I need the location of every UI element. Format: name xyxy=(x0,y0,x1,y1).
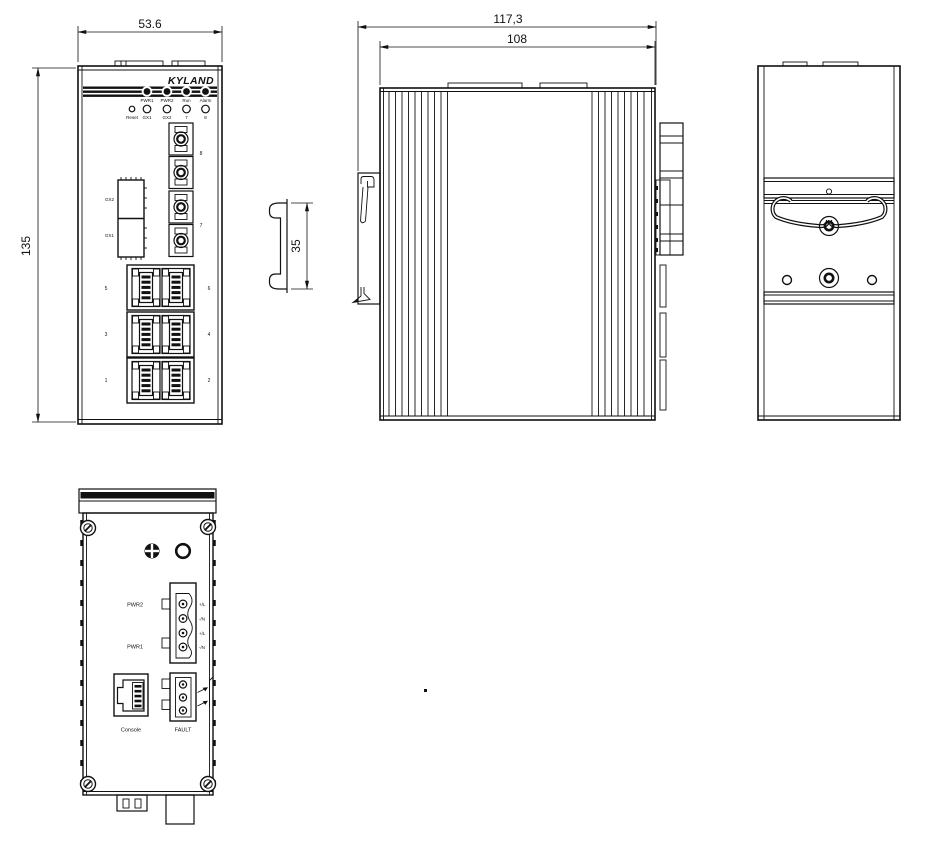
console-port[interactable] xyxy=(114,674,148,716)
sfp-label-gx2: GX2 xyxy=(105,197,115,202)
dimension-depth-body: 108 xyxy=(380,32,655,85)
fiber-port-label-8: 8 xyxy=(200,151,203,157)
bottom-feet xyxy=(117,795,194,824)
ground-screw-icon xyxy=(145,544,160,559)
terminal-pin-label-4: -/N xyxy=(199,645,205,650)
gx2-led-icon xyxy=(163,105,171,113)
rj45-label-2: 2 xyxy=(208,378,211,384)
alarm-led-icon xyxy=(202,88,209,95)
din-mount-lower-bar xyxy=(764,292,894,304)
led-label-7: 7 xyxy=(185,115,188,120)
dim-text-depth-body: 108 xyxy=(507,32,527,46)
din-mount-upper-bar xyxy=(764,178,894,198)
fiber-port-label-7: 7 xyxy=(200,223,203,229)
fault-terminal-block[interactable] xyxy=(162,673,196,721)
heatsink-fins-right xyxy=(592,92,644,417)
led-label-alarm: Alarm xyxy=(200,98,212,103)
sfp-slot-block[interactable] xyxy=(118,177,147,260)
brand-logo: KYLAND xyxy=(168,75,214,87)
reset-button[interactable] xyxy=(129,106,135,112)
rj45-group-2[interactable] xyxy=(127,312,194,357)
pwr2-label: PWR2 xyxy=(127,603,143,609)
mount-screw-icon xyxy=(820,269,839,288)
port8-led-icon xyxy=(202,105,210,113)
dim-text-depth-total: 117,3 xyxy=(493,12,522,26)
pilot-hole xyxy=(826,189,831,194)
run-led-icon xyxy=(183,88,190,95)
led-label-pwr2: PWR2 xyxy=(160,98,173,103)
dim-text-front-width: 53.6 xyxy=(138,17,162,31)
rj45-label-3: 3 xyxy=(105,332,108,338)
power-terminal-block[interactable] xyxy=(162,583,196,663)
dimension-front-width: 53.6 xyxy=(78,17,222,62)
rj45-group-1[interactable] xyxy=(127,265,194,310)
din-rail-profile: 35 xyxy=(270,199,314,293)
side-rj45-bezel xyxy=(660,265,666,410)
drawing-svg: 53.6 135 KYLAND xyxy=(0,0,939,848)
mechanical-drawing-canvas: 53.6 135 KYLAND xyxy=(0,0,939,848)
bottom-hole xyxy=(176,544,190,558)
rear-view xyxy=(758,62,900,420)
heatsink-fins-left xyxy=(389,92,448,417)
mount-hole xyxy=(783,276,792,285)
corner-screw-icon xyxy=(201,520,216,535)
console-label: Console xyxy=(121,728,141,734)
port7-led-icon xyxy=(183,105,191,113)
rj45-label-4: 4 xyxy=(208,332,211,338)
dim-text-din-rail: 35 xyxy=(289,239,303,253)
corner-screw-icon xyxy=(81,521,96,536)
dim-text-front-height: 135 xyxy=(19,236,33,256)
corner-screw-icon xyxy=(201,777,216,792)
dimension-din-rail: 35 xyxy=(289,203,313,289)
stray-mark xyxy=(424,689,427,692)
pwr1-led-icon xyxy=(144,88,151,95)
sc-fiber-port[interactable] xyxy=(169,225,193,257)
terminal-pin-label-3: +/L xyxy=(199,631,206,636)
rj45-label-6: 6 xyxy=(208,286,211,292)
sfp-label-gx1: GX1 xyxy=(105,233,115,238)
led-label-gx1: GX1 xyxy=(142,115,152,120)
dimension-front-height: 135 xyxy=(19,68,76,422)
status-led-band xyxy=(83,86,217,97)
sc-fiber-port[interactable] xyxy=(169,123,193,155)
pwr1-label: PWR1 xyxy=(127,645,143,651)
terminal-pin-label-2: -/N xyxy=(199,617,205,622)
bottom-cap xyxy=(79,489,216,513)
led-label-8: 8 xyxy=(204,115,207,120)
led-label-gx2: GX2 xyxy=(162,115,172,120)
rj45-label-1: 1 xyxy=(105,378,108,384)
led-label-run: Run xyxy=(182,98,191,103)
led-label-pwr1: PWR1 xyxy=(140,98,153,103)
sc-fiber-port[interactable] xyxy=(169,191,193,223)
mount-hole xyxy=(868,276,877,285)
pwr2-led-icon xyxy=(164,88,171,95)
front-view: 53.6 135 KYLAND xyxy=(19,17,222,424)
fault-label: FAULT xyxy=(175,728,192,734)
din-clip-side[interactable] xyxy=(353,173,380,304)
rj45-group-3[interactable] xyxy=(127,358,194,403)
gx1-led-icon xyxy=(143,105,151,113)
rj45-label-5: 5 xyxy=(105,286,108,292)
bottom-view: +/L -/N +/L -/N PWR2 PWR1 Console xyxy=(79,489,216,824)
relay-contact-icon xyxy=(198,677,214,708)
side-connector-block xyxy=(655,123,683,255)
reset-label: Reset xyxy=(126,115,139,120)
side-view: 117,3 108 xyxy=(353,12,683,420)
sc-fiber-port[interactable] xyxy=(169,157,193,189)
corner-screw-icon xyxy=(81,777,96,792)
terminal-pin-label-1: +/L xyxy=(199,602,206,607)
